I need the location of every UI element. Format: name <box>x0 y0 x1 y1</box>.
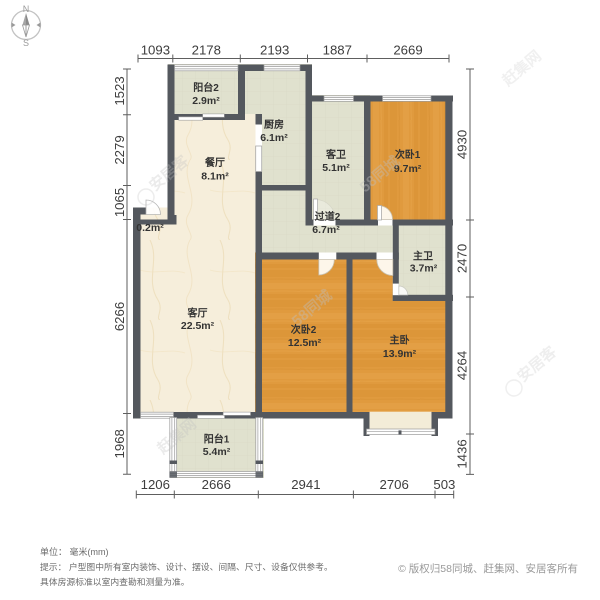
svg-text:2279: 2279 <box>112 135 127 164</box>
svg-text:具体房源标准以室内查勘和测量为准。: 具体房源标准以室内查勘和测量为准。 <box>40 576 190 587</box>
svg-text:6.7m²: 6.7m² <box>312 224 340 236</box>
svg-text:4930: 4930 <box>455 130 470 159</box>
svg-text:1968: 1968 <box>112 429 127 458</box>
svg-text:5.1m²: 5.1m² <box>322 162 350 174</box>
svg-text:过道2: 过道2 <box>315 210 341 223</box>
svg-text:2470: 2470 <box>455 244 470 273</box>
svg-text:503: 503 <box>433 477 455 492</box>
svg-text:2.9m²: 2.9m² <box>192 95 220 107</box>
svg-text:单位： 毫米(mm): 单位： 毫米(mm) <box>40 546 109 557</box>
svg-text:S: S <box>23 38 29 48</box>
svg-text:13.9m²: 13.9m² <box>383 348 417 360</box>
svg-text:12.5m²: 12.5m² <box>288 337 322 349</box>
svg-text:1887: 1887 <box>323 43 352 58</box>
svg-text:阳台1: 阳台1 <box>204 433 230 446</box>
svg-text:8.1m²: 8.1m² <box>201 171 229 183</box>
svg-text:2666: 2666 <box>202 477 231 492</box>
svg-text:厨房: 厨房 <box>264 118 284 131</box>
svg-text:2706: 2706 <box>380 477 409 492</box>
svg-text:次卧1: 次卧1 <box>395 148 421 161</box>
svg-text:2941: 2941 <box>291 477 320 492</box>
svg-text:1093: 1093 <box>141 43 170 58</box>
svg-text:提示： 户型图中所有室内装饰、设计、摆设、间隔、尺寸、设备仅: 提示： 户型图中所有室内装饰、设计、摆设、间隔、尺寸、设备仅供参考。 <box>40 561 333 572</box>
svg-text:主卧: 主卧 <box>390 334 410 347</box>
svg-text:6.1m²: 6.1m² <box>260 132 288 144</box>
svg-text:3.7m²: 3.7m² <box>410 263 438 275</box>
svg-text:5.4m²: 5.4m² <box>203 446 231 458</box>
svg-text:0.2m²: 0.2m² <box>136 222 164 234</box>
svg-text:主卫: 主卫 <box>413 250 433 263</box>
svg-text:阳台2: 阳台2 <box>193 81 219 94</box>
svg-text:6266: 6266 <box>112 302 127 331</box>
svg-text:1206: 1206 <box>141 477 170 492</box>
svg-text:1523: 1523 <box>112 76 127 105</box>
svg-text:N: N <box>23 4 30 14</box>
svg-text:客厅: 客厅 <box>187 307 208 320</box>
svg-text:1065: 1065 <box>112 188 127 217</box>
svg-text:© 版权归58同城、赶集网、安居客所有: © 版权归58同城、赶集网、安居客所有 <box>398 562 578 575</box>
svg-text:2669: 2669 <box>393 43 422 58</box>
svg-text:2178: 2178 <box>192 43 221 58</box>
svg-text:2193: 2193 <box>260 43 289 58</box>
svg-text:4264: 4264 <box>455 351 470 380</box>
svg-text:客卫: 客卫 <box>325 148 346 161</box>
svg-text:22.5m²: 22.5m² <box>181 320 215 332</box>
svg-text:1436: 1436 <box>455 439 470 468</box>
svg-text:餐厅: 餐厅 <box>204 156 225 169</box>
